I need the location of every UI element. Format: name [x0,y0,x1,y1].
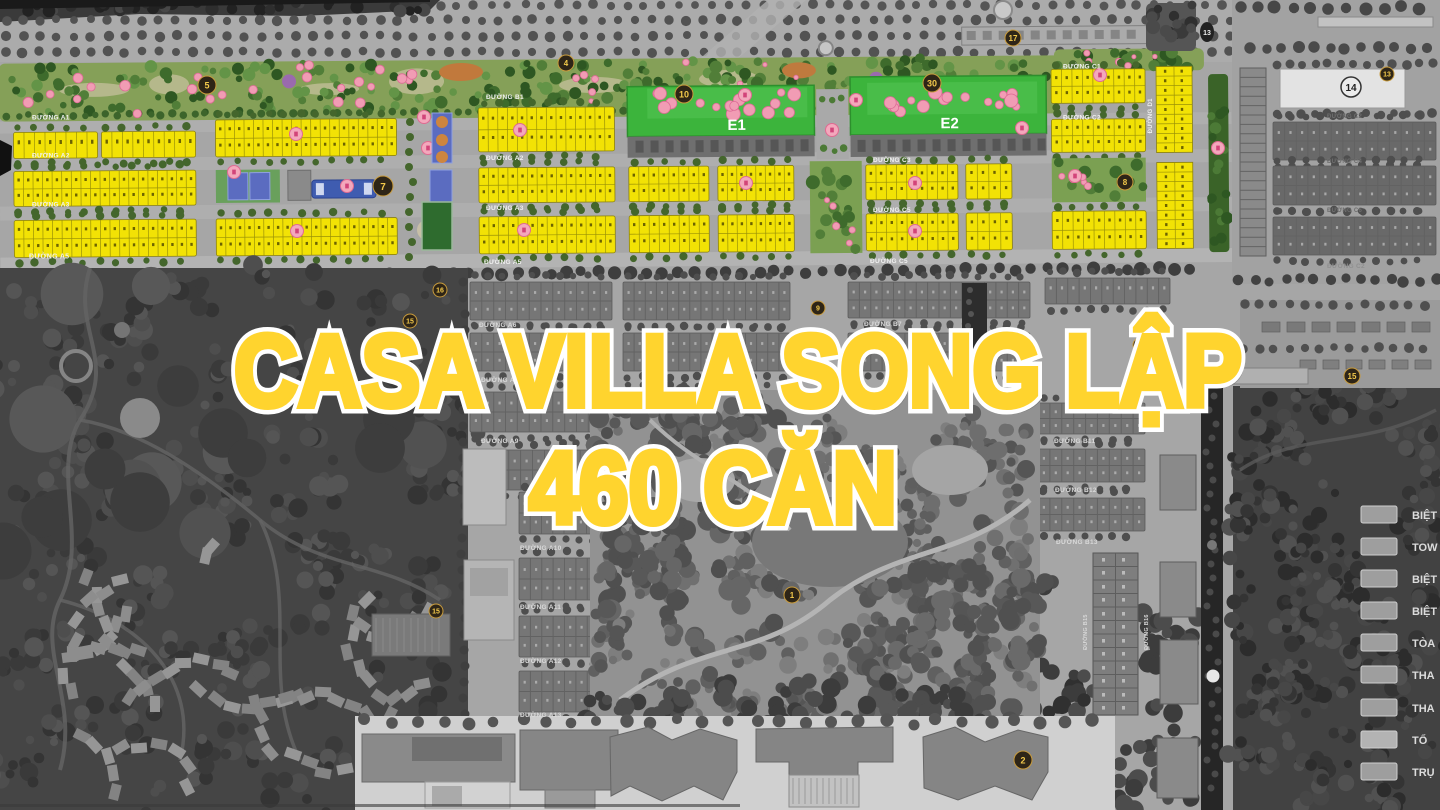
svg-text:14: 14 [1345,83,1357,94]
svg-text:E1: E1 [727,117,745,134]
svg-text:E2: E2 [940,115,958,132]
